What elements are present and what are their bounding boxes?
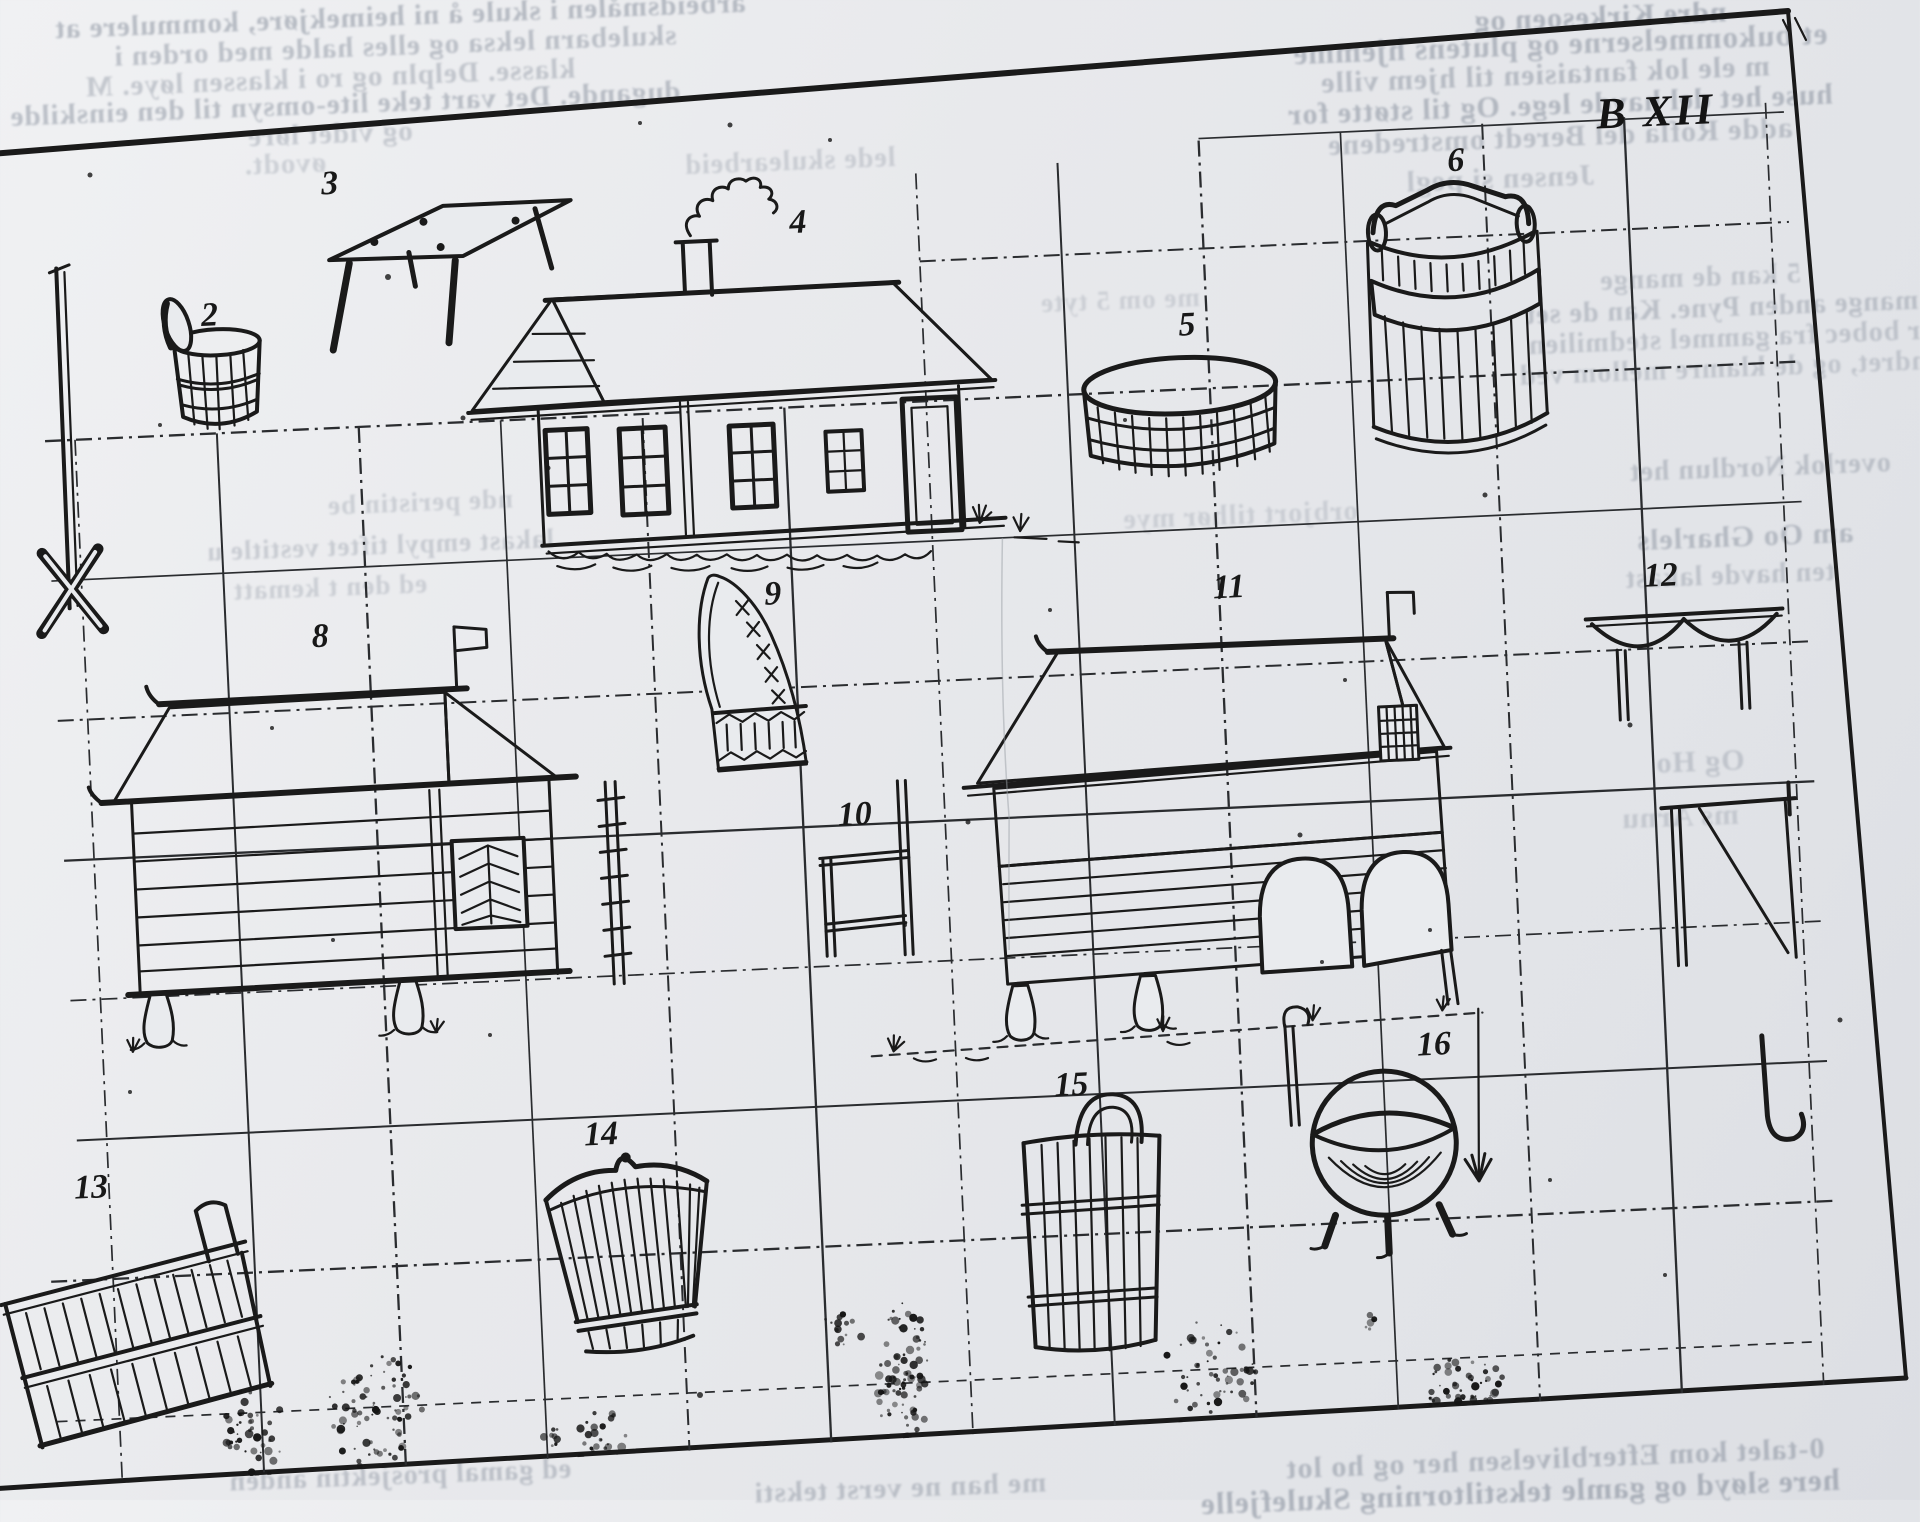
pole-with-hook (1283, 1006, 1313, 1125)
figure-label-9: 9 (763, 575, 782, 613)
ink-smudges (223, 1302, 1505, 1479)
post-with-rungs (597, 781, 632, 984)
gable-grille (1378, 705, 1418, 761)
hanging-arrow-line (1458, 1008, 1492, 1181)
figure-label-11: 11 (1212, 568, 1246, 606)
figure-label-5: 5 (1178, 306, 1197, 344)
figure-label-4: 4 (788, 203, 808, 241)
stirring-pole-figure (25, 264, 104, 633)
pot-hook (1762, 1034, 1804, 1140)
figure-label-3: 3 (319, 165, 339, 203)
plate-border (0, 11, 1906, 1489)
paper-crease (990, 538, 1021, 950)
braced-frame (1660, 782, 1802, 966)
house-windows (545, 416, 865, 518)
figure-label-14: 14 (583, 1115, 619, 1154)
figure-label-15: 15 (1053, 1066, 1089, 1105)
figure-tall-barrel (1363, 179, 1549, 457)
figure-low-vat (1083, 353, 1280, 480)
figure-farmhouse (458, 164, 1079, 585)
figure-label-12: 12 (1643, 556, 1679, 595)
figure-sled-runner (696, 571, 808, 771)
figure-label-6: 6 (1446, 142, 1465, 180)
ink-specks (88, 121, 1855, 1398)
herringbone-door (452, 838, 528, 929)
figure-label-10: 10 (837, 795, 873, 834)
figure-label-16: 16 (1416, 1025, 1452, 1064)
figure-scalloped-bench (1586, 609, 1788, 722)
scanned-book-page: arbeidsmålen i skule å ni heimekjøre, ko… (0, 0, 1920, 1500)
plate-illustration: 2 3 4 5 6 8 9 10 11 12 13 14 15 16 B XII (0, 0, 1920, 1500)
figure-cauldron (1303, 1068, 1467, 1261)
figure-label-13: 13 (73, 1168, 109, 1207)
house-door (902, 397, 962, 532)
plate-label: B XII (1594, 84, 1716, 138)
figure-label-8: 8 (311, 618, 330, 656)
figure-label-2: 2 (199, 296, 219, 334)
figure-storehouse (82, 622, 587, 1054)
figure-hooped-barrel (1021, 1094, 1162, 1352)
figure-barn (852, 589, 1484, 1065)
